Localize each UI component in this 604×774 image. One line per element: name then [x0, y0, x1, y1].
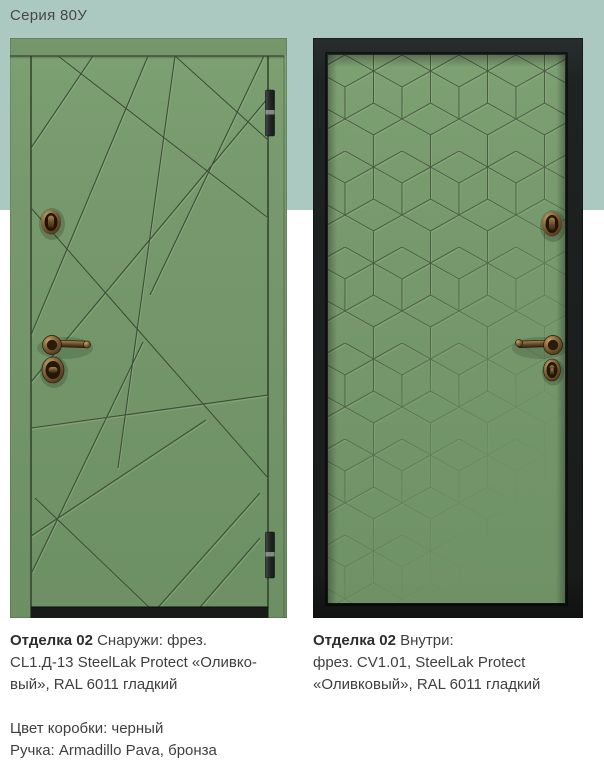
door-head-jamb [10, 38, 287, 56]
top-escutcheon [540, 210, 566, 242]
lock-escutcheon [40, 356, 68, 388]
catalog-page: Серия 80У [0, 0, 604, 774]
milling-pattern-cv101 [328, 55, 565, 603]
finish-description-interior: Отделка 02 Внутри: фрез. CV1.01, SteelLa… [313, 630, 597, 696]
door-threshold [31, 607, 268, 618]
finish-label: Отделка 02 [10, 632, 93, 649]
door-interior-image [313, 38, 583, 618]
caption-exterior: Отделка 02 Снаружи: фрез. CL1.Д-13 Steel… [10, 630, 300, 762]
hinge-bottom [266, 532, 275, 578]
finish-label: Отделка 02 [313, 632, 396, 649]
top-escutcheon [39, 208, 65, 240]
hardware-details: Цвет коробки: черный Ручка: Armadillo Pa… [10, 718, 300, 762]
caption-interior: Отделка 02 Внутри: фрез. CV1.01, SteelLa… [313, 630, 597, 696]
keyhole-escutcheon [542, 359, 564, 386]
series-title: Серия 80У [10, 7, 87, 24]
hinge-top [266, 90, 275, 136]
finish-description-exterior: Отделка 02 Снаружи: фрез. CL1.Д-13 Steel… [10, 630, 300, 696]
door-exterior-image [10, 38, 287, 618]
